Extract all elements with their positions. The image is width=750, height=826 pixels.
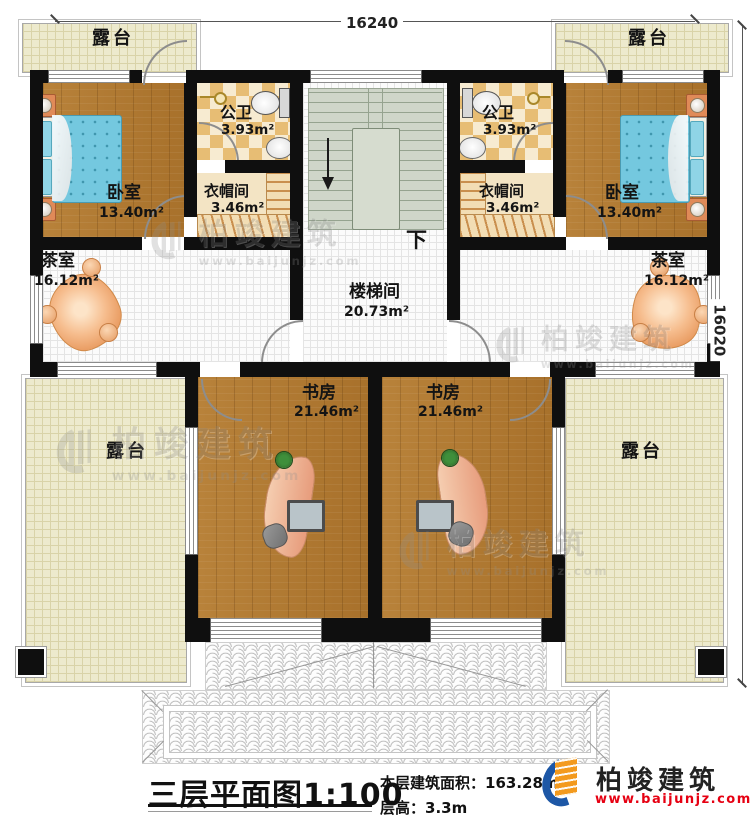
column [698, 649, 724, 675]
window [48, 70, 130, 83]
window [622, 70, 704, 83]
tearoom-left-label: 茶室 [41, 253, 75, 270]
wall-segment [290, 83, 303, 237]
window [57, 362, 157, 377]
sink-icon [459, 137, 486, 159]
window [430, 618, 542, 642]
tearoom-left-area: 16.12m² [34, 274, 99, 288]
wall-segment [30, 70, 48, 83]
down-arrow-icon [322, 177, 334, 190]
bedroom-left-label: 卧室 [107, 185, 141, 202]
floor-height-label: 层高： [380, 799, 425, 817]
wall-segment [420, 70, 564, 83]
pillow [690, 121, 704, 157]
brand-website: www.baijunjz.com [595, 792, 750, 807]
study-left-area: 21.46m² [294, 405, 359, 419]
plant-icon [276, 452, 292, 468]
study-right-area: 21.46m² [418, 405, 483, 419]
monitor-icon [287, 500, 325, 532]
wardrobe [197, 214, 292, 239]
stair-center-flight [352, 128, 400, 230]
terrace-bottom-left-label: 露台 [106, 443, 148, 461]
cloakroom-left-label: 衣帽间 [204, 184, 249, 199]
top-dimension-label: 16240 [341, 15, 403, 32]
terrace-bottom-right-floor [565, 378, 724, 683]
pillow [690, 159, 704, 195]
wall-segment [447, 237, 566, 250]
wall-segment [320, 618, 430, 642]
toilet-icon [279, 88, 290, 118]
stair-rail-line [382, 88, 383, 130]
wall-segment [30, 342, 43, 362]
pouf [99, 323, 118, 342]
window [552, 427, 565, 555]
wall-segment [184, 83, 197, 167]
right-dimension-line [742, 25, 743, 685]
wall-segment [198, 618, 210, 642]
stair-down-label: 下 [406, 230, 427, 251]
wall-segment [184, 167, 197, 217]
window [310, 70, 422, 83]
roof-tiles [205, 642, 547, 690]
wall-segment [552, 377, 565, 427]
floor-height-value: 3.3m [425, 799, 467, 817]
stair-treads [398, 130, 442, 228]
wall-segment [608, 70, 622, 83]
tearoom-right-area: 16.12m² [644, 274, 709, 288]
cloakroom-right-area: 3.46m² [486, 202, 539, 216]
wall-segment [553, 83, 566, 167]
wall-segment [608, 237, 720, 250]
study-right-label: 书房 [426, 385, 460, 402]
lamp-icon [690, 202, 705, 217]
wall-segment [553, 167, 566, 217]
floor-area-label: 本层建筑面积： [380, 774, 485, 792]
bedroom-right-label: 卧室 [605, 185, 639, 202]
wall-segment [186, 70, 310, 83]
plan-title-text: 三层平面图 [148, 778, 303, 813]
wall-segment [184, 237, 303, 250]
wall-segment [290, 237, 303, 320]
nightstand [686, 94, 709, 117]
roof-ridge-line [373, 642, 374, 688]
wall-segment [30, 362, 57, 377]
study-left-label: 书房 [302, 385, 336, 402]
stair-rail-line [368, 88, 369, 130]
floor-height-line: 层高：3.3m [380, 797, 467, 818]
bathroom-left-area: 3.93m² [221, 124, 274, 138]
bathroom-left-label: 公卫 [220, 105, 252, 121]
stair-treads [308, 92, 442, 130]
lamp-icon [690, 98, 705, 113]
stairwell-label: 楼梯间 [349, 284, 400, 301]
wall-segment [240, 362, 510, 377]
roof-flat-band [164, 706, 596, 758]
wall-segment [693, 362, 720, 377]
wall-segment [460, 160, 525, 173]
plant-icon [442, 450, 458, 466]
cloakroom-right-label: 衣帽间 [479, 184, 524, 199]
wall-segment [155, 362, 200, 377]
tearoom-right-label: 茶室 [651, 253, 685, 270]
window [210, 618, 322, 642]
window [185, 427, 198, 555]
wall-segment [185, 377, 198, 427]
title-underline [148, 804, 372, 807]
wall-segment [550, 362, 595, 377]
wall-segment [368, 377, 382, 642]
wall-segment [30, 237, 142, 250]
wall-segment [185, 553, 198, 642]
toilet-icon [251, 91, 280, 115]
wall-segment [128, 70, 142, 83]
sink-icon [266, 137, 293, 159]
cloakroom-left-area: 3.46m² [211, 202, 264, 216]
wall-segment [540, 618, 565, 642]
wall-segment [447, 83, 460, 237]
terrace-top-left-label: 露台 [92, 30, 134, 48]
wall-segment [447, 237, 460, 320]
plan-title: 三层平面图1:100 [148, 770, 404, 814]
window [595, 362, 695, 377]
terrace-bottom-left-floor [25, 378, 187, 683]
bedroom-left-area: 13.40m² [99, 206, 164, 220]
floor-plan-page: { "dimensions": { "top": "16240", "right… [0, 0, 750, 826]
stairwell-area: 20.73m² [344, 305, 409, 319]
title-underline-thin [148, 811, 372, 812]
down-arrow-stem [327, 138, 329, 178]
wall-segment [702, 70, 720, 83]
bathroom-right-label: 公卫 [482, 105, 514, 121]
terrace-top-right-label: 露台 [628, 30, 670, 48]
wardrobe [460, 214, 555, 239]
wall-segment [225, 160, 290, 173]
bedroom-right-area: 13.40m² [597, 206, 662, 220]
terrace-bottom-right-label: 露台 [621, 443, 663, 461]
pouf [631, 323, 650, 342]
column [18, 649, 44, 675]
shower-icon [527, 92, 540, 105]
bathroom-right-area: 3.93m² [483, 124, 536, 138]
floor-area-line: 本层建筑面积：163.28m² [380, 772, 565, 793]
right-dimension-label: 16020 [711, 299, 728, 361]
bed-blanket [668, 115, 688, 201]
monitor-icon [416, 500, 454, 532]
brand-logo-icon [540, 754, 588, 810]
